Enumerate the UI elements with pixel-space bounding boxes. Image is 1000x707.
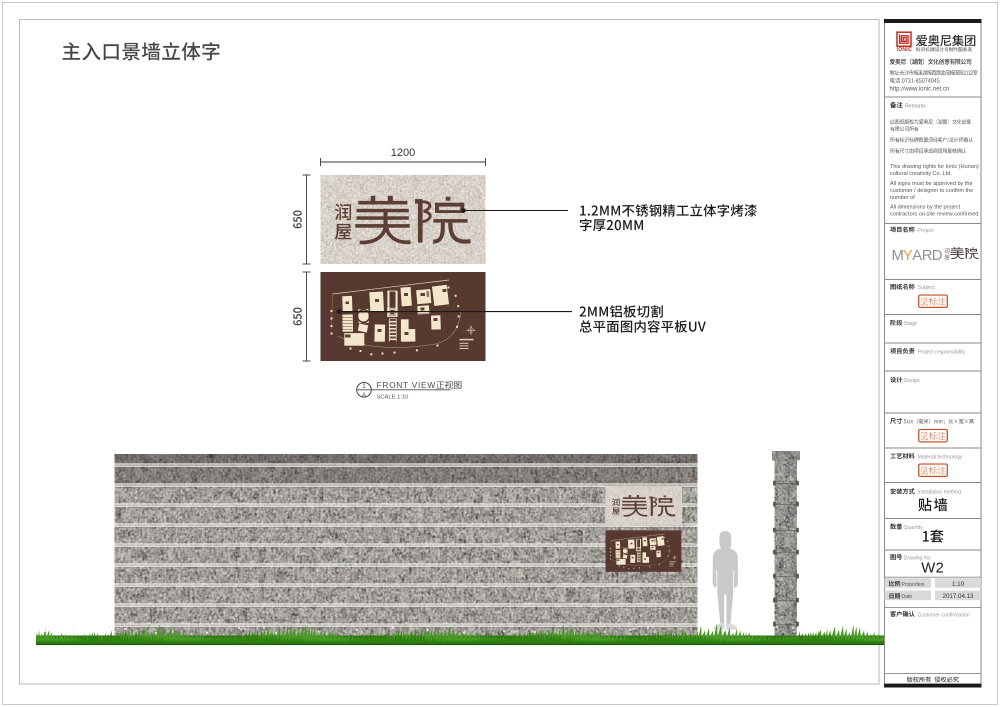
svg-text:number of: number of: [890, 195, 915, 201]
svg-text:Stage: Stage: [904, 321, 918, 327]
svg-text:SCALE 1:10: SCALE 1:10: [377, 395, 409, 401]
svg-text:FRONT VIEW: FRONT VIEW: [377, 380, 436, 390]
svg-text:This drawing rights for Ionic: This drawing rights for Ionic (Hunan): [890, 164, 979, 170]
svg-text:W2: W2: [921, 561, 944, 577]
svg-text:2017.04.13: 2017.04.13: [943, 593, 975, 600]
svg-text:All dimensions by the project: All dimensions by the project: [890, 204, 960, 210]
svg-text:Date: Date: [902, 594, 913, 600]
svg-text:1200: 1200: [391, 147, 415, 159]
svg-text:A: A: [362, 392, 367, 399]
svg-text:Subject: Subject: [918, 285, 936, 291]
svg-text:D: D: [932, 248, 943, 264]
svg-text:Remarks: Remarks: [905, 103, 926, 109]
svg-text:Proportion: Proportion: [902, 582, 925, 588]
svg-text:Project: Project: [918, 228, 935, 234]
svg-text:All signs must be approved by: All signs must be approved by the: [890, 181, 973, 187]
svg-text:contractors on-site review con: contractors on-site review confirmed: [890, 211, 978, 217]
svg-text:Project responsibility: Project responsibility: [918, 349, 966, 355]
svg-text:1: 1: [362, 383, 366, 390]
svg-text:Quantity: Quantity: [904, 525, 924, 531]
svg-text:1:10: 1:10: [952, 581, 965, 588]
svg-text:Material technology: Material technology: [918, 454, 963, 460]
svg-text:Customer confirmation: Customer confirmation: [918, 612, 970, 618]
svg-text:Installation method: Installation method: [918, 490, 962, 496]
svg-text:http://www.ionic.net.cn: http://www.ionic.net.cn: [890, 86, 950, 92]
svg-text:Design: Design: [904, 378, 920, 384]
svg-text:customer / designer to confirm: customer / designer to confirm the: [890, 188, 973, 194]
svg-text:IONIC: IONIC: [897, 47, 912, 53]
svg-text:cultural creativity Co. Ltd.: cultural creativity Co. Ltd.: [890, 171, 952, 177]
svg-text:A: A: [912, 248, 922, 264]
